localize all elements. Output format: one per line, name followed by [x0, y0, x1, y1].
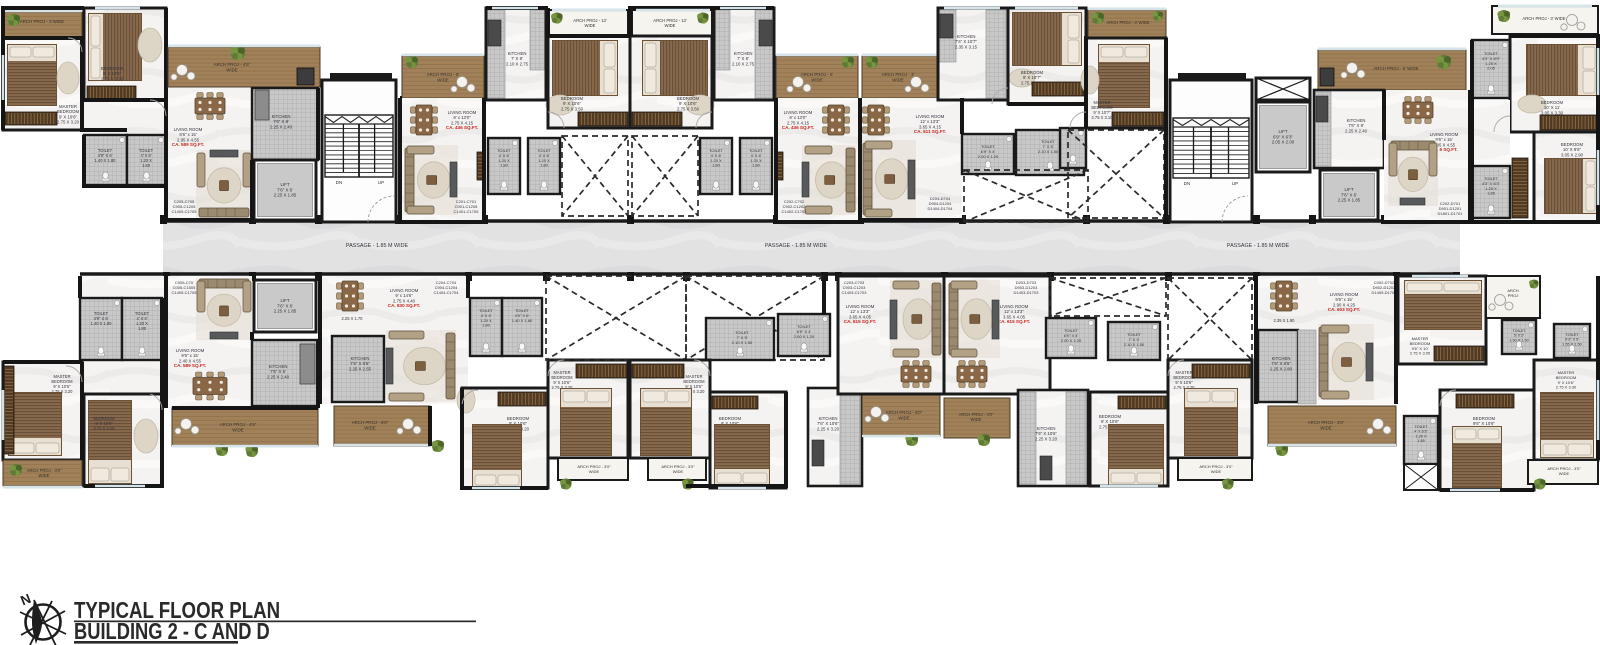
- svg-text:CA. 589 SQ.FT.: CA. 589 SQ.FT.: [174, 363, 206, 368]
- svg-text:KITCHEN7'6" X 10'6"2.25 X 3.20: KITCHEN7'6" X 10'6"2.25 X 3.20: [817, 416, 840, 431]
- svg-text:2.35 X 1.90: 2.35 X 1.90: [1274, 318, 1296, 323]
- svg-text:CA. 615 SQ.FT.: CA. 615 SQ.FT.: [998, 319, 1030, 324]
- svg-text:PASSAGE - 1.85 M WIDE: PASSAGE - 1.85 M WIDE: [765, 243, 828, 249]
- svg-text:MASTERBEDROOM9' X 10'6"2.75 X: MASTERBEDROOM9' X 10'6"2.75 X 3.20: [57, 104, 80, 125]
- svg-text:MASTERBEDROOM9' X 10'6"2.75 X: MASTERBEDROOM9' X 10'6"2.75 X 3.20: [51, 374, 73, 394]
- svg-text:MASTERBEDROOM9' X 10'6"2.75 X: MASTERBEDROOM9' X 10'6"2.75 X 3.20: [551, 370, 573, 390]
- svg-text:CA. 436 SQ.FT.: CA. 436 SQ.FT.: [782, 125, 814, 130]
- svg-text:BEDROOM9' X 10'6"2.75 X 3.20: BEDROOM9' X 10'6"2.75 X 3.20: [101, 66, 124, 81]
- svg-text:KITCHEN7'6" X 8'6"2.25 X 2.80: KITCHEN7'6" X 8'6"2.25 X 2.80: [1270, 356, 1293, 371]
- svg-text:KITCHEN7'6" X 10'7"2.35 X 3.15: KITCHEN7'6" X 10'7"2.35 X 3.15: [955, 34, 978, 49]
- svg-text:D204-D704D904-D1204D1404-D1704: D204-D704D904-D1204D1404-D1704: [928, 196, 954, 211]
- svg-text:UP: UP: [378, 180, 384, 185]
- svg-text:MASTERBEDROOM9' X 10'7"2.75 X: MASTERBEDROOM9' X 10'7"2.75 X 3.10: [1091, 100, 1113, 120]
- svg-text:BEDROOM9' X 10'6"2.70 X 3.20: BEDROOM9' X 10'6"2.70 X 3.20: [93, 416, 115, 431]
- svg-text:BEDROOM10' X 9'6"3.05 X 2.90: BEDROOM10' X 9'6"3.05 X 2.90: [1561, 142, 1584, 157]
- svg-text:MASTERBEDROOM9'6" X 10'2.75 X: MASTERBEDROOM9'6" X 10'2.75 X 3.05: [1410, 336, 1431, 356]
- svg-text:KITCHEN7'6" X 10'6"2.25 X 3.20: KITCHEN7'6" X 10'6"2.25 X 3.20: [1035, 426, 1058, 441]
- svg-text:BEDROOM9' X 10'6"2.75 X 3.50: BEDROOM9' X 10'6"2.75 X 3.50: [677, 96, 700, 111]
- svg-text:PASSAGE - 1.85 M WIDE: PASSAGE - 1.85 M WIDE: [346, 243, 409, 249]
- svg-text:BUILDING 2 - C AND D: BUILDING 2 - C AND D: [74, 619, 270, 645]
- svg-text:PASSAGE - 1.85 M WIDE: PASSAGE - 1.85 M WIDE: [1227, 243, 1290, 249]
- svg-text:C205-C705C905-C1205C1405-C1705: C205-C705C905-C1205C1405-C1705: [172, 199, 198, 214]
- svg-text:ARCHPROJ: ARCHPROJ: [1507, 288, 1518, 298]
- svg-text:MASTERBEDROOM9' X 10'6"2.75 X: MASTERBEDROOM9' X 10'6"2.75 X 3.30: [1556, 370, 1577, 390]
- svg-text:C002-D702D902-D1202D1409-D1702: C002-D702D902-D1202D1409-D1702: [1372, 280, 1398, 295]
- svg-text:C204-C704C904-C1204C1404-C1704: C204-C704C904-C1204C1404-C1704: [434, 280, 460, 295]
- svg-text:UP: UP: [1232, 181, 1238, 186]
- svg-text:CA. 830 SQ.FT.: CA. 830 SQ.FT.: [388, 303, 420, 308]
- svg-text:CA. 603 SQ.FT.: CA. 603 SQ.FT.: [1328, 307, 1360, 312]
- svg-text:C203-C703C903-C1203C1403-C1703: C203-C703C903-C1203C1403-C1703: [842, 280, 868, 295]
- svg-text:2.25 X 1.70: 2.25 X 1.70: [342, 316, 364, 321]
- svg-text:C202-D701D901-D1201D1801-D1701: C202-D701D901-D1201D1801-D1701: [1438, 201, 1464, 216]
- svg-text:ARCH PROJ - 3' WIDE: ARCH PROJ - 3' WIDE: [1106, 20, 1149, 25]
- svg-text:ARCH PROJ - 3' WIDE: ARCH PROJ - 3' WIDE: [1522, 16, 1565, 21]
- svg-text:DN: DN: [1184, 181, 1191, 186]
- svg-text:C201-C701C901-C1205C1401-C1705: C201-C701C901-C1205C1401-C1705: [454, 199, 480, 214]
- svg-text:CA. 589 SQ.FT.: CA. 589 SQ.FT.: [172, 142, 204, 147]
- svg-text:ARCH PROJ - 3 WIDE: ARCH PROJ - 3 WIDE: [20, 19, 64, 24]
- svg-text:KITCHEN7'6" X 8'6"2.25 X 2.55: KITCHEN7'6" X 8'6"2.25 X 2.55: [349, 356, 372, 371]
- svg-text:CA. 436 SQ.FT.: CA. 436 SQ.FT.: [446, 125, 478, 130]
- svg-text:C202-C702C902-C1202C1402-C1702: C202-C702C902-C1202C1402-C1702: [782, 199, 808, 214]
- svg-text:ARCH PROJ - 5' WIDE: ARCH PROJ - 5' WIDE: [1373, 66, 1418, 71]
- svg-text:CA. 611 SQ.FT.: CA. 611 SQ.FT.: [914, 129, 946, 134]
- svg-text:D203-D703D903-D1203D1403-D1703: D203-D703D903-D1203D1403-D1703: [1014, 280, 1040, 295]
- svg-text:CA. 615 SQ.FT.: CA. 615 SQ.FT.: [844, 319, 876, 324]
- svg-text:DN: DN: [336, 180, 343, 185]
- svg-text:BEDROOM9' X 10'6"2.75 X 3.50: BEDROOM9' X 10'6"2.75 X 3.50: [561, 96, 584, 111]
